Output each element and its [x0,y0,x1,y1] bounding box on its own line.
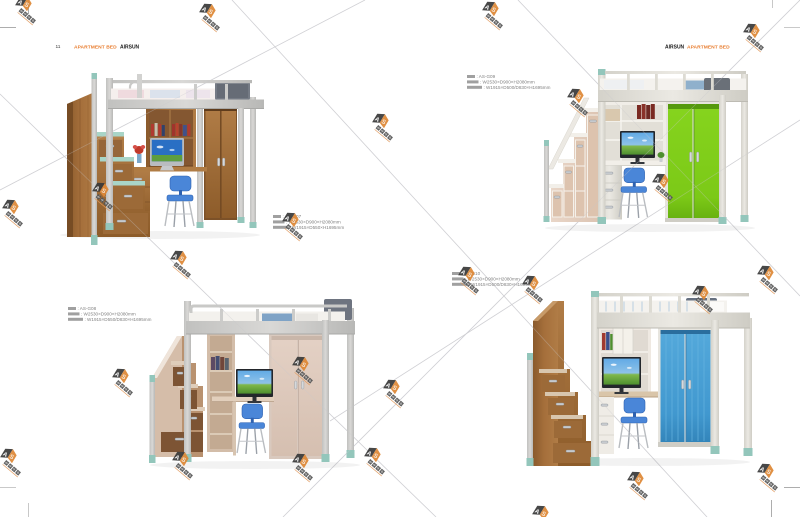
svg-text:: AS-G09: : AS-G09 [477,74,496,79]
svg-text:APARTMENT BED: APARTMENT BED [74,45,117,51]
svg-text:: W2530×D900×H2080mm: : W2530×D900×H2080mm [465,276,520,281]
svg-text:AIRSUN: AIRSUN [120,45,140,51]
svg-text:: W2530×D900×H2080mm: : W2530×D900×H2080mm [480,79,535,84]
svg-text:: AS-G08: : AS-G08 [78,306,97,311]
svg-text:: W2530×D900×H2080mm: : W2530×D900×H2080mm [81,311,136,316]
svg-text:11: 11 [56,44,61,50]
svg-text:AIRSUN: AIRSUN [665,45,685,51]
svg-text:: W1915×D550×H1695mm: : W1915×D550×H1695mm [290,225,345,230]
svg-text:APARTMENT BED: APARTMENT BED [687,45,730,51]
svg-text:: W1915×D550/D830×H1695mm: : W1915×D550/D830×H1695mm [85,317,152,322]
svg-text:: W1915×D500/D830×H1695mm: : W1915×D500/D830×H1695mm [484,85,551,90]
